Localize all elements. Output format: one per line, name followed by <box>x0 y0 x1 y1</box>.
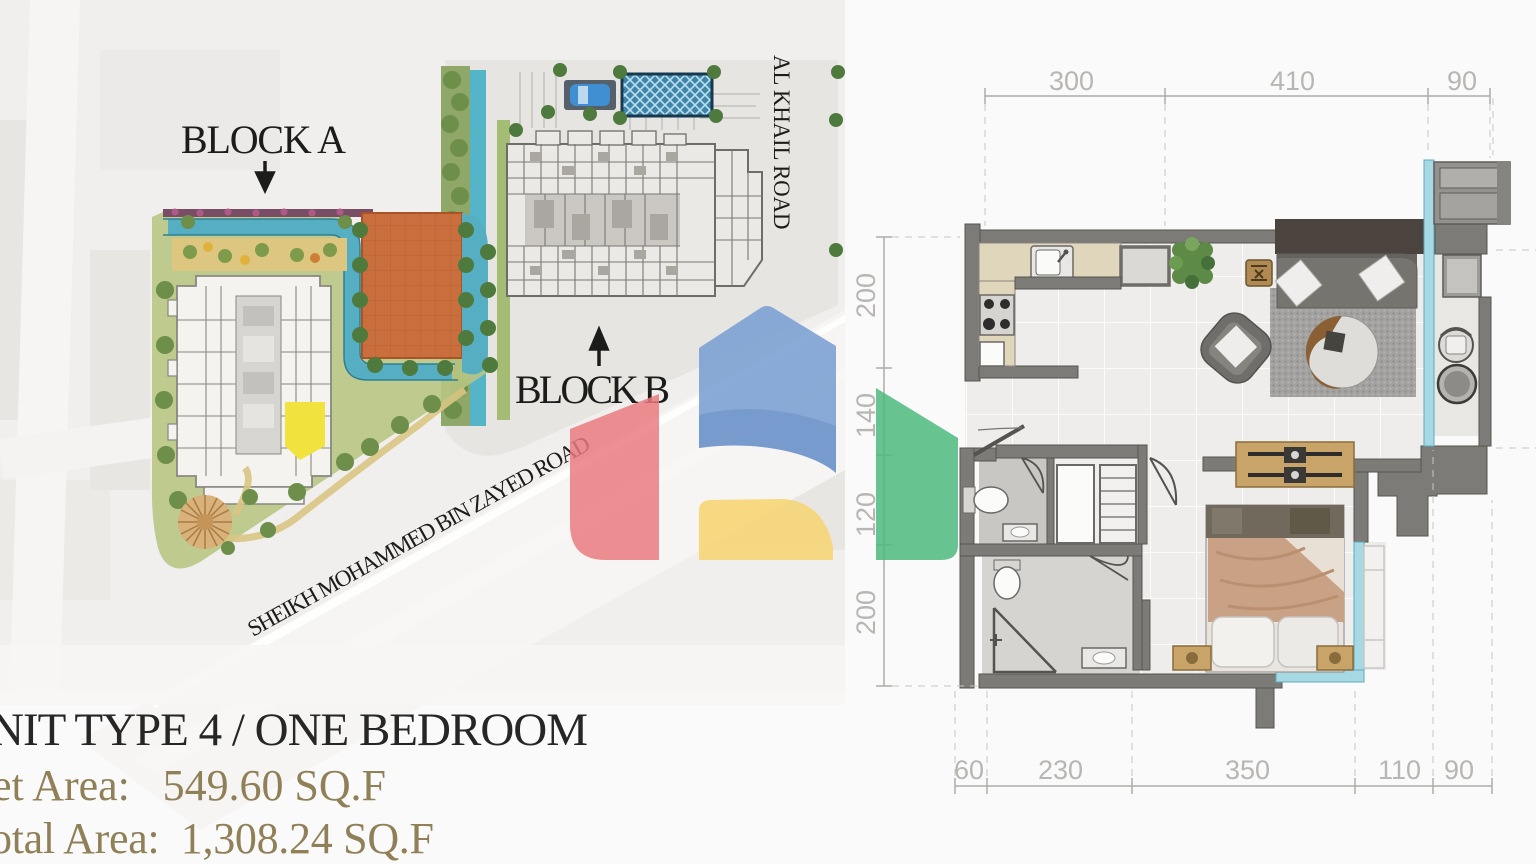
svg-text:BLOCK A: BLOCK A <box>181 117 349 162</box>
svg-text:350: 350 <box>1225 755 1270 785</box>
svg-text:otal Area: 1,308.24 SQ.F: otal Area: 1,308.24 SQ.F <box>0 814 434 863</box>
svg-text:90: 90 <box>1447 66 1477 96</box>
svg-text:410: 410 <box>1270 66 1315 96</box>
svg-text:200: 200 <box>851 590 881 635</box>
svg-text:90: 90 <box>1444 755 1474 785</box>
svg-text:200: 200 <box>851 273 881 318</box>
svg-text:110: 110 <box>1378 755 1421 785</box>
svg-text:NIT TYPE 4 / ONE BEDROOM: NIT TYPE 4 / ONE BEDROOM <box>0 704 588 756</box>
svg-text:60: 60 <box>954 755 984 785</box>
svg-text:230: 230 <box>1038 755 1083 785</box>
svg-text:et Area: 549.60 SQ.F: et Area: 549.60 SQ.F <box>0 761 386 810</box>
svg-text:300: 300 <box>1049 66 1094 96</box>
svg-text:AL KHAIL ROAD: AL KHAIL ROAD <box>769 55 794 231</box>
